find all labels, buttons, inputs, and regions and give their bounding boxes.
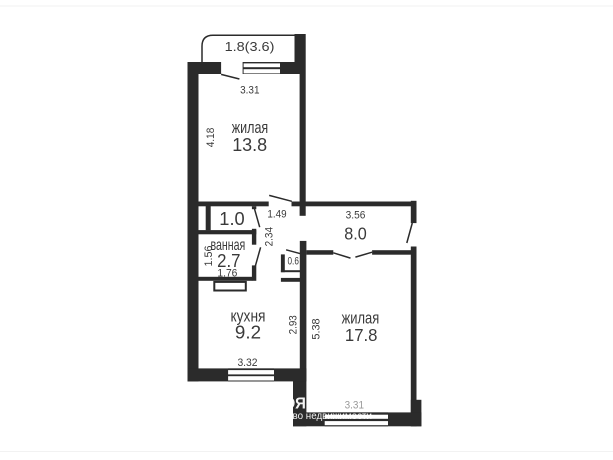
svg-text:1.76: 1.76: [217, 268, 237, 280]
svg-text:3.56: 3.56: [346, 209, 366, 221]
svg-text:1.0: 1.0: [219, 209, 244, 229]
svg-text:4.18: 4.18: [205, 128, 217, 148]
svg-text:2.34: 2.34: [264, 227, 276, 246]
svg-text:2.93: 2.93: [288, 315, 300, 334]
svg-text:1.49: 1.49: [267, 209, 286, 221]
svg-text:3.32: 3.32: [237, 357, 257, 369]
svg-text:агентство недвижимости: агентство недвижимости: [259, 411, 372, 422]
svg-text:3.31: 3.31: [240, 84, 259, 96]
svg-text:3.31: 3.31: [345, 399, 364, 411]
svg-text:9.2: 9.2: [235, 323, 261, 343]
svg-text:5.38: 5.38: [310, 318, 322, 339]
svg-text:13.8: 13.8: [232, 135, 267, 155]
svg-text:8.0: 8.0: [344, 224, 367, 244]
svg-text:1.56: 1.56: [203, 246, 215, 267]
svg-text:17.8: 17.8: [345, 325, 378, 345]
svg-text:1.8(3.6): 1.8(3.6): [225, 40, 275, 54]
svg-text:0.6: 0.6: [288, 256, 299, 268]
